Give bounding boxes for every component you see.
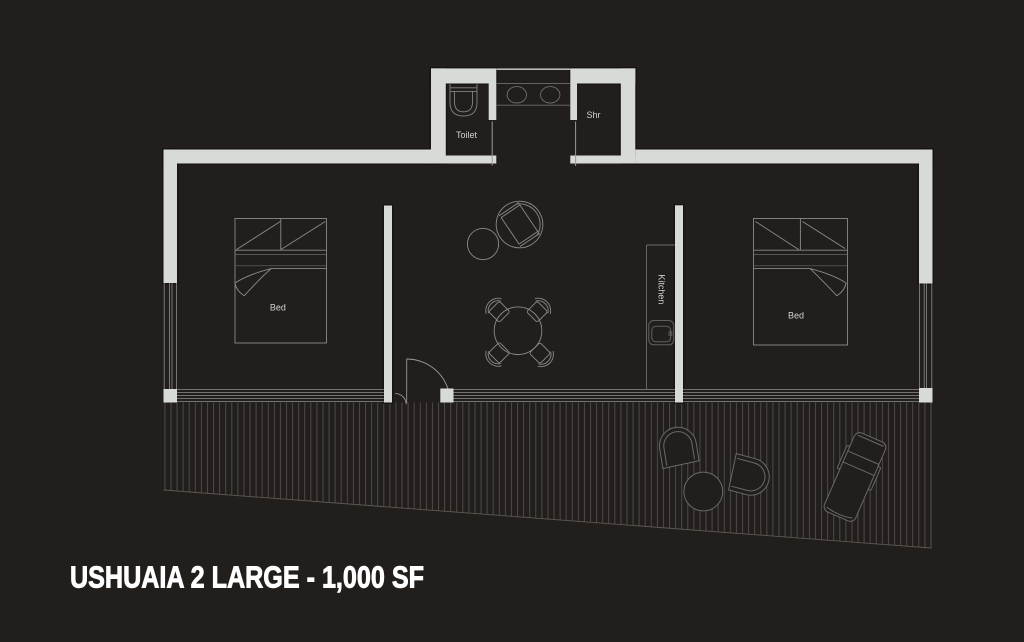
- svg-text:USHUAIA 2 LARGE - 1,000 SF: USHUAIA 2 LARGE - 1,000 SF: [70, 560, 424, 595]
- svg-text:Bed: Bed: [788, 310, 804, 320]
- svg-text:Toilet: Toilet: [456, 130, 478, 140]
- svg-text:Kitchen: Kitchen: [657, 274, 667, 304]
- svg-text:Bed: Bed: [270, 303, 286, 313]
- svg-text:Shr: Shr: [586, 110, 600, 120]
